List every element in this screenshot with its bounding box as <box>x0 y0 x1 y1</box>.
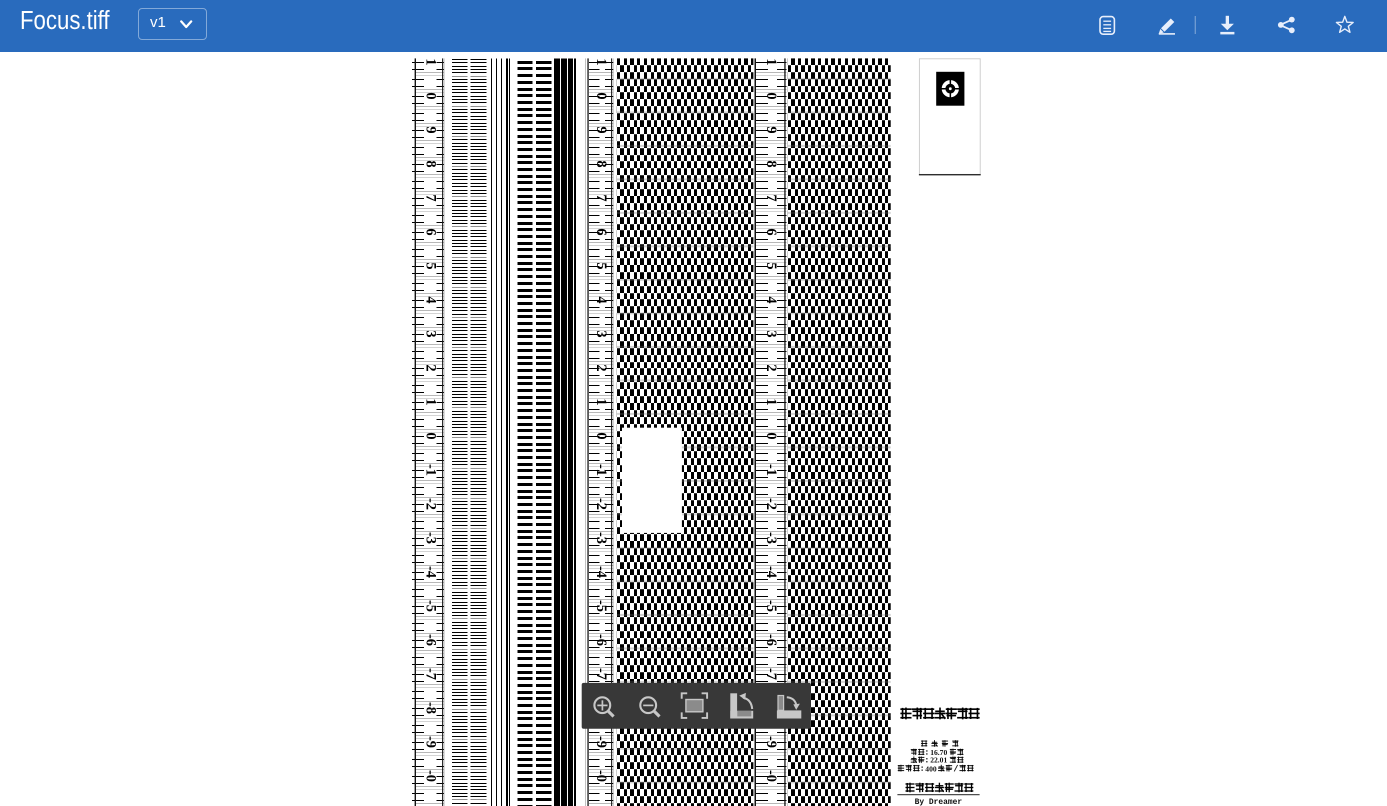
svg-text:-1: -1 <box>593 464 609 476</box>
svg-text:0: 0 <box>593 432 609 439</box>
svg-text:3: 3 <box>763 330 779 337</box>
svg-text:6: 6 <box>763 228 779 235</box>
svg-text:9: 9 <box>593 126 609 133</box>
svg-text:2: 2 <box>422 364 438 371</box>
svg-text:-5: -5 <box>593 600 609 612</box>
svg-text:1: 1 <box>422 398 438 405</box>
svg-text:-0: -0 <box>763 770 779 782</box>
svg-text:-5: -5 <box>763 600 779 612</box>
svg-text:-7: -7 <box>763 668 779 680</box>
svg-text:1: 1 <box>763 58 779 65</box>
svg-text:6: 6 <box>593 228 609 235</box>
svg-text:0: 0 <box>593 92 609 99</box>
svg-text:-1: -1 <box>763 464 779 476</box>
svg-text:-3: -3 <box>763 532 779 544</box>
svg-text:By Dreamer: By Dreamer <box>915 798 963 806</box>
svg-text:400: 400 <box>925 764 937 773</box>
svg-text:5: 5 <box>593 262 609 269</box>
svg-text:2: 2 <box>763 364 779 371</box>
svg-text:3: 3 <box>422 330 438 337</box>
svg-text:-7: -7 <box>593 668 609 680</box>
svg-text:7: 7 <box>593 194 609 201</box>
svg-text:4: 4 <box>593 296 609 303</box>
svg-text:7: 7 <box>422 194 438 201</box>
svg-text:3: 3 <box>593 330 609 337</box>
svg-text:9: 9 <box>422 126 438 133</box>
svg-text:-3: -3 <box>593 532 609 544</box>
svg-text:0: 0 <box>763 432 779 439</box>
svg-text:-0: -0 <box>593 770 609 782</box>
svg-text:2: 2 <box>593 364 609 371</box>
svg-text:0: 0 <box>422 432 438 439</box>
svg-text:0: 0 <box>763 92 779 99</box>
svg-text:5: 5 <box>763 262 779 269</box>
svg-text:-2: -2 <box>593 498 609 510</box>
svg-text:6: 6 <box>422 228 438 235</box>
svg-text:-4: -4 <box>422 566 438 578</box>
svg-text:1: 1 <box>422 58 438 65</box>
svg-text:-5: -5 <box>422 600 438 612</box>
svg-text:1: 1 <box>593 398 609 405</box>
svg-text:-6: -6 <box>593 634 609 646</box>
svg-text:-8: -8 <box>422 702 438 714</box>
svg-text:-1: -1 <box>422 464 438 476</box>
svg-text:-9: -9 <box>593 736 609 748</box>
svg-text:1: 1 <box>593 58 609 65</box>
svg-text:-2: -2 <box>763 498 779 510</box>
svg-text:4: 4 <box>763 296 779 303</box>
svg-text:-6: -6 <box>763 634 779 646</box>
svg-text:-0: -0 <box>422 770 438 782</box>
svg-text:-2: -2 <box>422 498 438 510</box>
svg-text:-9: -9 <box>422 736 438 748</box>
svg-text:-3: -3 <box>422 532 438 544</box>
svg-text:8: 8 <box>763 160 779 167</box>
svg-text:0: 0 <box>422 92 438 99</box>
svg-text:8: 8 <box>593 160 609 167</box>
svg-text:-6: -6 <box>422 634 438 646</box>
svg-text:9: 9 <box>763 126 779 133</box>
svg-text:-9: -9 <box>763 736 779 748</box>
svg-text:7: 7 <box>763 194 779 201</box>
svg-text:-4: -4 <box>763 566 779 578</box>
svg-text:-4: -4 <box>593 566 609 578</box>
svg-text:8: 8 <box>422 160 438 167</box>
svg-text:1: 1 <box>763 398 779 405</box>
svg-text:-7: -7 <box>422 668 438 680</box>
svg-text:4: 4 <box>422 296 438 303</box>
svg-text:5: 5 <box>422 262 438 269</box>
